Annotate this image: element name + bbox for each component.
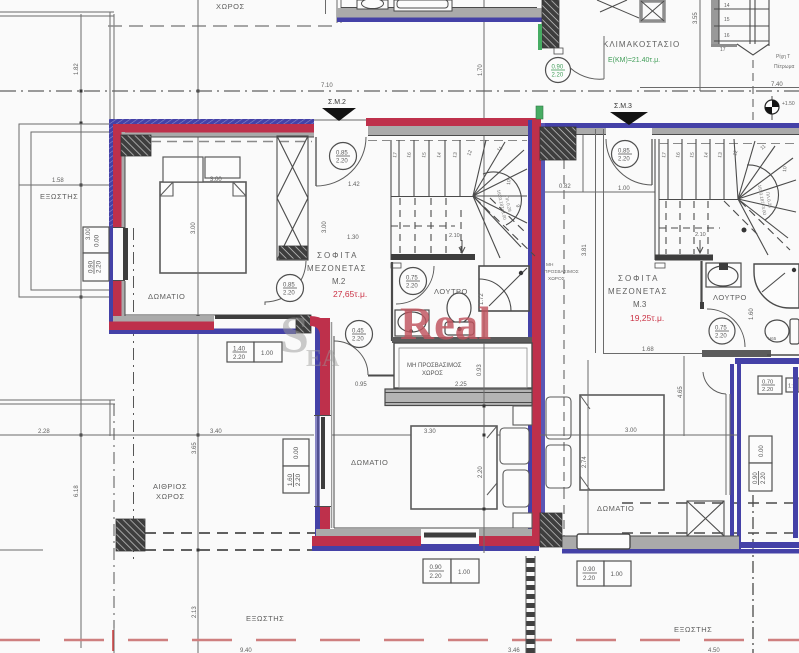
svg-text:2.13: 2.13: [192, 606, 198, 618]
svg-text:3.00: 3.00: [625, 428, 637, 434]
svg-text:2.20: 2.20: [761, 472, 767, 484]
svg-text:3.46: 3.46: [508, 648, 520, 653]
svg-text:ΧΩΡΟΣ: ΧΩΡΟΣ: [548, 276, 565, 282]
svg-text:19,25τ.μ.: 19,25τ.μ.: [630, 313, 664, 323]
svg-text:3.00: 3.00: [322, 221, 328, 233]
svg-text:4.65: 4.65: [678, 386, 684, 398]
svg-text:0.95: 0.95: [355, 382, 367, 388]
svg-text:3.00: 3.00: [86, 228, 92, 240]
svg-text:ΕΞΩΣΤΗΣ: ΕΞΩΣΤΗΣ: [246, 614, 284, 623]
svg-text:0.00: 0.00: [94, 234, 101, 247]
svg-text:2.20: 2.20: [552, 73, 564, 79]
svg-text:6.18: 6.18: [74, 485, 80, 497]
svg-text:2.25: 2.25: [455, 382, 467, 388]
svg-text:1.30: 1.30: [347, 235, 359, 241]
svg-text:0.90: 0.90: [88, 260, 95, 273]
svg-text:1.58: 1.58: [52, 178, 64, 184]
svg-text:Μ.2: Μ.2: [332, 277, 346, 286]
svg-text:ΧΩΡΟΣ: ΧΩΡΟΣ: [216, 2, 245, 11]
svg-text:2.20: 2.20: [583, 575, 596, 582]
svg-text:Real: Real: [400, 298, 491, 350]
svg-text:0.90: 0.90: [583, 566, 596, 573]
svg-text:ΛΟΥΤΡΟ: ΛΟΥΤΡΟ: [713, 293, 747, 302]
svg-text:ΜΕΖΟΝΕΤΑΣ: ΜΕΖΟΝΕΤΑΣ: [307, 264, 367, 273]
svg-text:ΠΡΟΣΒΑΣΙΜΟΣ: ΠΡΟΣΒΑΣΙΜΟΣ: [544, 269, 579, 275]
svg-text:3.55: 3.55: [693, 12, 699, 24]
svg-text:+1.50: +1.50: [782, 101, 795, 107]
svg-text:1.82: 1.82: [74, 63, 80, 75]
svg-text:ΚΛΙΜΑΚΟΣΤΑΣΙΟ: ΚΛΙΜΑΚΟΣΤΑΣΙΟ: [603, 40, 680, 49]
svg-text:2.20: 2.20: [430, 573, 443, 580]
svg-text:ΣΟΦΙΤΑ: ΣΟΦΙΤΑ: [317, 251, 358, 260]
svg-text:9.40: 9.40: [240, 648, 252, 653]
svg-text:16: 16: [724, 33, 730, 39]
svg-text:15: 15: [724, 17, 730, 23]
svg-text:17: 17: [720, 47, 726, 53]
svg-text:1.00: 1.00: [618, 186, 630, 192]
svg-text:3.30: 3.30: [424, 429, 436, 435]
svg-text:H65: H65: [768, 336, 777, 341]
svg-text:1.00: 1.00: [261, 350, 274, 357]
svg-text:1.40: 1.40: [233, 346, 246, 353]
svg-text:2.20: 2.20: [336, 159, 348, 165]
svg-text:1.70: 1.70: [478, 64, 484, 76]
svg-text:ΕΞΩΣΤΗΣ: ΕΞΩΣΤΗΣ: [40, 192, 78, 201]
svg-text:2.74: 2.74: [582, 456, 588, 468]
svg-text:3.65: 3.65: [192, 442, 198, 454]
svg-text:ΕΑ: ΕΑ: [306, 346, 340, 372]
svg-text:ΜΗ: ΜΗ: [546, 262, 554, 268]
svg-text:0.00: 0.00: [293, 446, 300, 459]
svg-text:2.10: 2.10: [449, 233, 460, 239]
svg-text:2.10: 2.10: [695, 232, 706, 238]
svg-text:S: S: [280, 307, 309, 364]
svg-text:10: 10: [782, 166, 788, 172]
svg-text:4.50: 4.50: [708, 648, 720, 653]
svg-text:ΧΩΡΟΣ: ΧΩΡΟΣ: [422, 371, 443, 377]
svg-text:3.81: 3.81: [582, 244, 588, 256]
svg-text:ΜΕΖΟΝΕΤΑΣ: ΜΕΖΟΝΕΤΑΣ: [608, 287, 668, 296]
svg-text:2.20: 2.20: [715, 334, 727, 340]
svg-text:ΔΩΜΑΤΙΟ: ΔΩΜΑΤΙΟ: [597, 504, 634, 513]
svg-text:ΑΙΘΡΙΟΣ: ΑΙΘΡΙΟΣ: [153, 482, 187, 491]
svg-text:1.00: 1.00: [458, 569, 471, 576]
svg-text:1.68: 1.68: [642, 347, 654, 353]
svg-text:0.93: 0.93: [477, 364, 483, 376]
svg-text:ΧΩΡΟΣ: ΧΩΡΟΣ: [156, 492, 185, 501]
svg-text:10: 10: [506, 179, 512, 185]
svg-text:2.20: 2.20: [406, 284, 418, 290]
svg-text:ΛΟΥΤΡΟ: ΛΟΥΤΡΟ: [434, 287, 468, 296]
svg-text:ΔΩΜΑΤΙΟ: ΔΩΜΑΤΙΟ: [351, 458, 388, 467]
svg-text:2.20: 2.20: [283, 291, 295, 297]
svg-text:Ρίχη Τ: Ρίχη Τ: [776, 54, 790, 60]
svg-text:0.90: 0.90: [430, 564, 443, 571]
svg-text:0.00: 0.00: [759, 445, 765, 457]
svg-text:0.82: 0.82: [559, 184, 571, 190]
svg-text:1.42: 1.42: [348, 182, 360, 188]
svg-text:1.00: 1.00: [611, 571, 624, 578]
svg-text:2.20: 2.20: [762, 387, 773, 393]
svg-text:ΕΞΩΣΤΗΣ: ΕΞΩΣΤΗΣ: [674, 625, 712, 634]
svg-text:2.20: 2.20: [233, 354, 246, 361]
svg-text:1.60: 1.60: [287, 473, 294, 486]
svg-text:Ε(ΚΜ)=21.40τ.μ.: Ε(ΚΜ)=21.40τ.μ.: [608, 57, 660, 64]
svg-text:3.00: 3.00: [191, 222, 197, 234]
svg-text:7.40: 7.40: [771, 82, 783, 88]
svg-text:2.20: 2.20: [618, 157, 630, 163]
svg-text:1.60: 1.60: [749, 308, 755, 320]
svg-text:27,65τ.μ.: 27,65τ.μ.: [333, 289, 367, 299]
svg-text:2.20: 2.20: [352, 337, 364, 343]
svg-text:2.20: 2.20: [478, 466, 484, 478]
svg-text:2.28: 2.28: [38, 429, 50, 435]
svg-text:ΜΗ ΠΡΟΣΒΑΣΙΜΟΣ: ΜΗ ΠΡΟΣΒΑΣΙΜΟΣ: [407, 363, 462, 369]
svg-text:Σ.Μ.2: Σ.Μ.2: [328, 99, 346, 106]
svg-text:2.20: 2.20: [295, 473, 302, 486]
svg-text:Πέτρωμα: Πέτρωμα: [774, 63, 794, 70]
svg-text:7.10: 7.10: [321, 83, 333, 89]
svg-text:2.20: 2.20: [96, 260, 103, 273]
svg-text:Σ.Μ.3: Σ.Μ.3: [614, 103, 632, 110]
svg-text:ΣΟΦΙΤΑ: ΣΟΦΙΤΑ: [618, 274, 659, 283]
svg-text:3.40: 3.40: [210, 429, 222, 435]
svg-text:3.00: 3.00: [210, 177, 222, 183]
svg-text:14: 14: [724, 3, 730, 9]
svg-text:Μ.3: Μ.3: [633, 300, 647, 309]
svg-text:ΔΩΜΑΤΙΟ: ΔΩΜΑΤΙΟ: [148, 292, 185, 301]
